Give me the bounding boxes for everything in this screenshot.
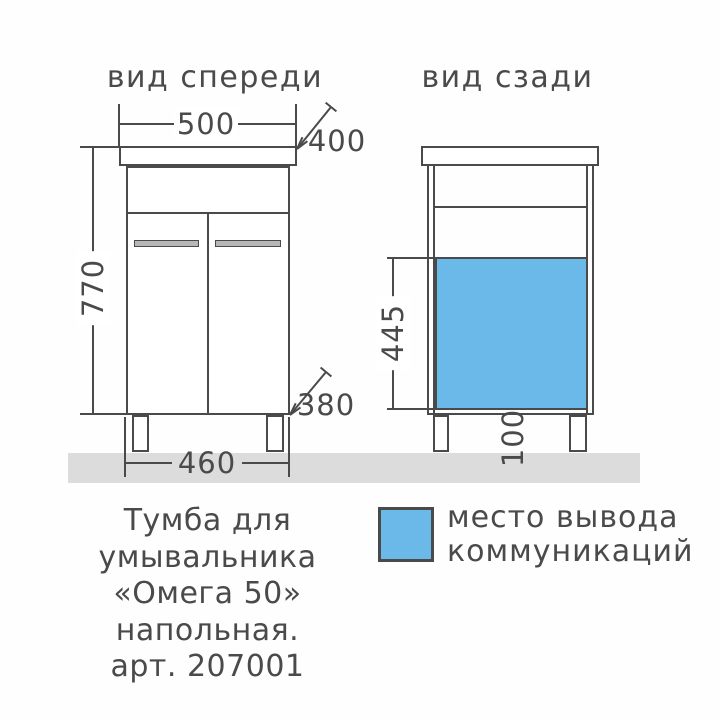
back-view-title: вид сзади <box>400 60 615 95</box>
dim-depth-top-label: 400 <box>311 124 363 158</box>
front-door-divider <box>207 213 209 415</box>
back-right-wall-outer <box>592 166 594 415</box>
technical-drawing-page: вид спереди 500 770 460 400 380 вид сзад… <box>0 0 720 720</box>
floor-band <box>68 453 640 483</box>
front-left-leg <box>132 415 149 452</box>
dim-leg-label: 100 <box>496 409 530 467</box>
legend-text: место вывода коммуникаций <box>447 501 694 569</box>
caption-line-3: «Омега 50» <box>60 576 355 613</box>
dim-base-line-right <box>242 462 288 464</box>
front-right-leg <box>266 415 284 452</box>
caption-line-5: арт. 207001 <box>60 649 355 686</box>
legend-line-2: коммуникаций <box>447 535 694 569</box>
caption-line-4: напольная. <box>60 613 355 650</box>
caption-line-1: Тумба для <box>60 503 355 540</box>
dim-height-label: 770 <box>76 251 110 325</box>
back-countertop <box>421 146 599 166</box>
dim-height-ext-bottom <box>80 413 126 415</box>
dim-base-label: 460 <box>175 446 239 480</box>
front-countertop <box>119 146 297 166</box>
dim-base-line-left <box>126 462 172 464</box>
front-left-door-handle <box>134 240 199 247</box>
dim-width-label: 500 <box>174 107 238 141</box>
legend-line-1: место вывода <box>447 501 694 535</box>
back-right-leg <box>569 415 587 452</box>
back-left-leg <box>433 415 449 452</box>
dim-comm-ext-bottom <box>387 408 435 410</box>
dim-width-tick-right <box>295 104 297 148</box>
communications-zone <box>435 257 588 410</box>
caption-line-2: умывальника <box>60 540 355 577</box>
back-left-wall-outer <box>427 166 429 415</box>
legend-color-swatch <box>378 507 434 562</box>
dim-height-ext-top <box>80 146 119 148</box>
front-view-title: вид спереди <box>90 60 340 95</box>
back-shelf-line <box>435 206 588 208</box>
dim-width-tick-left <box>118 104 120 148</box>
dim-depth-bottom-label: 380 <box>300 388 352 422</box>
front-right-door-handle <box>215 240 281 247</box>
product-caption: Тумба для умывальника «Омега 50» напольн… <box>60 503 355 686</box>
dim-comm-label: 445 <box>376 296 410 370</box>
dim-base-tick-left <box>124 417 126 477</box>
dim-base-tick-right <box>288 417 290 477</box>
dim-comm-ext-top <box>387 257 435 259</box>
